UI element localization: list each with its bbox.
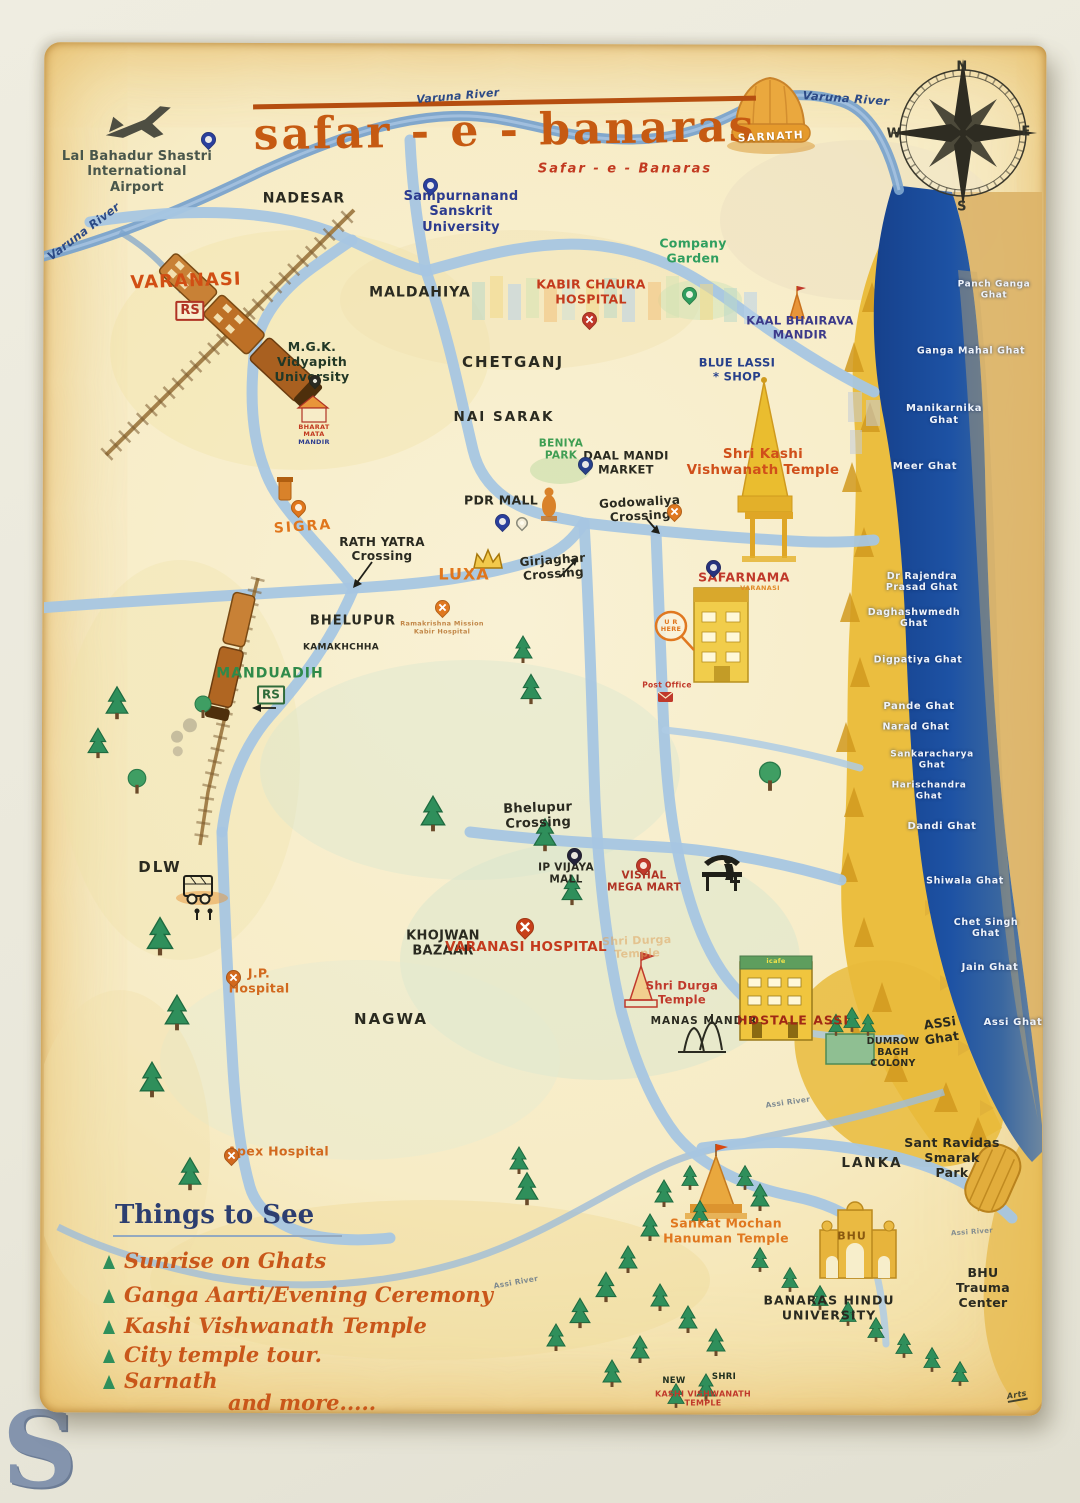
label-rath-yatra-crossing: RATH YATRA Crossing bbox=[339, 535, 425, 563]
ghat-label: Daghashwmedh Ghat bbox=[868, 607, 961, 629]
ghat-label: Jain Ghat bbox=[962, 962, 1019, 974]
label-varanasi-rs: VARANASI bbox=[130, 268, 242, 293]
label-company-garden: Company Garden bbox=[659, 236, 726, 266]
things-to-see-item: Sunrise on Ghats bbox=[103, 1248, 326, 1273]
ghat-label: Sankaracharya Ghat bbox=[890, 749, 974, 770]
compass-north: N bbox=[956, 59, 967, 74]
map-subtitle: Safar - e - Banaras bbox=[538, 161, 712, 176]
label-dlw: DLW bbox=[138, 859, 181, 877]
ghat-label: Shiwala Ghat bbox=[926, 875, 1004, 886]
label-bhelupur: BHELUPUR bbox=[310, 613, 396, 628]
label-nagwa: NAGWA bbox=[354, 1011, 428, 1029]
label-varanasi-hospital: VARANASI HOSPITAL bbox=[445, 940, 607, 956]
label-nadesar: NADESAR bbox=[263, 191, 345, 208]
compass-east: E bbox=[1021, 124, 1030, 139]
things-to-see-item: Sarnath bbox=[103, 1368, 218, 1393]
label-airport: Lal Bahadur Shastri International Airpor… bbox=[62, 149, 212, 195]
label-ip-vijaya-mall: IP VIJAYA MALL bbox=[538, 862, 594, 887]
label-sankat-mochan: Sankat Mochan Hanuman Temple bbox=[663, 1216, 789, 1246]
label-assi-ghat-land: ASSi Ghat bbox=[922, 1014, 961, 1048]
ghat-label: Digpatiya Ghat bbox=[874, 654, 963, 665]
ghat-label: Assi Ghat bbox=[984, 1017, 1043, 1029]
label-chetganj: CHETGANJ bbox=[462, 354, 564, 372]
things-to-see-item: Kashi Vishwanath Temple bbox=[103, 1313, 427, 1338]
label-new-kashi-b: SHRI bbox=[712, 1372, 736, 1382]
label-maldahiya: MALDAHIYA bbox=[369, 285, 471, 302]
label-bhelupur-crossing: Bhelupur Crossing bbox=[503, 799, 573, 832]
label-sant-ravidas: Sant Ravidas Smarak Park bbox=[904, 1136, 1000, 1180]
things-to-see-more: and more..... bbox=[228, 1390, 376, 1415]
label-shri-durga-faint: Shri Durga Temple bbox=[602, 934, 672, 962]
label-dumrow-colony: DUMROW BAGH COLONY bbox=[867, 1036, 920, 1070]
label-new-kashi-c: KASHI VISHWANATH TEMPLE bbox=[655, 1390, 751, 1409]
ghat-label: Harischandra Ghat bbox=[892, 780, 967, 801]
safarnama-building-icon bbox=[694, 588, 748, 682]
things-to-see-heading: Things to See bbox=[113, 1200, 342, 1237]
label-kashi-vishwanath: Shri Kashi Vishwanath Temple bbox=[687, 447, 840, 479]
label-girjaghar-crossing: Girjaghar Crossing bbox=[519, 551, 587, 584]
label-you-are-here: U R HERE bbox=[661, 619, 682, 633]
label-beniya-park: BENIYA PARK bbox=[539, 438, 583, 463]
label-bhu-gate: BHU bbox=[837, 1231, 867, 1244]
label-shri-durga: Shri Durga Temple bbox=[646, 979, 718, 1006]
map-title: safar - e - banaras bbox=[253, 101, 757, 162]
label-kaal-bhairava: KAAL BHAIRAVA MANDIR bbox=[746, 314, 854, 341]
varanasi-rs-badge: RS bbox=[175, 301, 204, 321]
ghat-label: Ganga Mahal Ghat bbox=[917, 345, 1025, 356]
label-safarnama-sub: VARANASI bbox=[740, 585, 780, 593]
manduadih-rs-badge: RS bbox=[257, 686, 285, 705]
tree-bullet-icon bbox=[103, 1255, 115, 1269]
label-sampurnanand: Sampurnanand Sanskrit University bbox=[404, 189, 519, 235]
post-office-icon bbox=[658, 692, 673, 702]
ghat-label: Meer Ghat bbox=[893, 461, 957, 473]
ghat-label: Narad Ghat bbox=[882, 721, 949, 732]
things-to-see-item: City temple tour. bbox=[103, 1342, 322, 1367]
tree-bullet-icon bbox=[103, 1289, 115, 1303]
compass-west: W bbox=[887, 126, 902, 141]
label-apex-hospital: Apex Hospital bbox=[227, 1145, 329, 1160]
sigra-monument-icon bbox=[277, 477, 293, 500]
label-bhu-trauma: BHU Trauma Center bbox=[935, 1266, 1032, 1310]
ghat-label: Dr Rajendra Prasad Ghat bbox=[886, 571, 958, 593]
tree-bullet-icon bbox=[103, 1349, 115, 1363]
label-kamakhchha: KAMAKHCHHA bbox=[303, 643, 379, 654]
airplane-icon bbox=[102, 102, 178, 150]
ghat-label: Pande Ghat bbox=[883, 701, 954, 713]
label-kabir-chaura: KABIR CHAURA HOSPITAL bbox=[536, 277, 646, 307]
label-lanka: LANKA bbox=[841, 1156, 902, 1172]
label-rk-mission-hospital: Ramakrishna Mission Kabir Hospital bbox=[400, 620, 484, 635]
label-new-kashi-a: NEW bbox=[662, 1376, 685, 1386]
label-bharat-mata-mandir: MANDIR bbox=[298, 439, 330, 447]
ghat-label: Dandi Ghat bbox=[907, 821, 976, 833]
tree-bullet-icon bbox=[103, 1320, 115, 1334]
ghat-label: Panch Ganga Ghat bbox=[951, 279, 1037, 300]
hostale-band-text: icafe bbox=[766, 958, 785, 966]
label-blue-lassi: BLUE LASSI * SHOP bbox=[699, 356, 775, 383]
framed-map-painting-photo: S bbox=[0, 0, 1080, 1503]
label-hostale-assi: HOSTALE ASSI bbox=[737, 1014, 849, 1029]
label-bhu-university: BANARAS HINDU UNIVERSITY bbox=[763, 1293, 894, 1323]
things-to-see-item: Ganga Aarti/Evening Ceremony bbox=[103, 1282, 493, 1307]
label-bharat-mata: BHARAT MATA bbox=[298, 424, 329, 438]
label-nai-sarak: NAI SARAK bbox=[454, 410, 555, 426]
label-luxa: LUXA bbox=[438, 566, 489, 585]
label-post-office: Post Office bbox=[642, 682, 692, 691]
ghat-label: Manikarnika Ghat bbox=[906, 403, 982, 427]
tree-bullet-icon bbox=[103, 1375, 115, 1389]
label-pdr-mall: PDR MALL bbox=[464, 494, 538, 509]
label-manduadih: MANDUADIH bbox=[216, 666, 323, 683]
compass-south: S bbox=[957, 199, 967, 214]
label-daal-mandi: DAAL MANDI MARKET bbox=[583, 449, 668, 476]
ghat-label: Chet Singh Ghat bbox=[939, 917, 1033, 939]
